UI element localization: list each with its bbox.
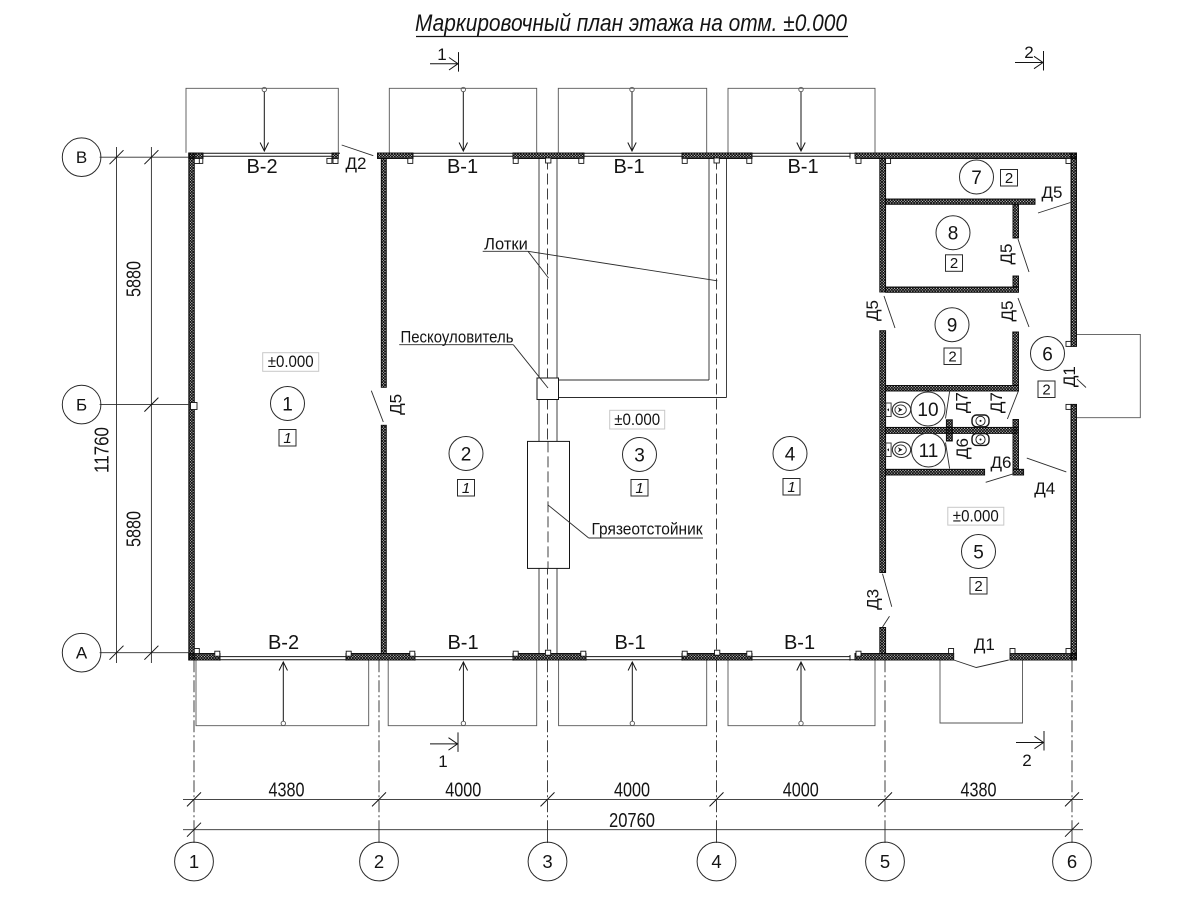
- svg-text:4000: 4000: [783, 780, 819, 802]
- svg-text:Пескоуловитель: Пескоуловитель: [401, 328, 514, 347]
- svg-text:3: 3: [634, 445, 645, 466]
- svg-text:5: 5: [880, 851, 890, 872]
- svg-text:Б: Б: [76, 396, 87, 415]
- svg-text:1: 1: [282, 394, 293, 415]
- svg-text:6: 6: [1042, 344, 1053, 365]
- svg-text:Грязеотстойник: Грязеотстойник: [592, 520, 704, 539]
- svg-text:Д6: Д6: [991, 453, 1012, 472]
- svg-text:11: 11: [919, 441, 939, 462]
- svg-text:2: 2: [1022, 751, 1031, 770]
- svg-text:Д5: Д5: [997, 244, 1016, 265]
- svg-text:5: 5: [973, 542, 984, 563]
- svg-text:В-1: В-1: [784, 632, 815, 654]
- svg-text:В-1: В-1: [447, 632, 478, 654]
- svg-text:2: 2: [1024, 43, 1033, 62]
- svg-text:5880: 5880: [124, 511, 146, 547]
- svg-text:Д6: Д6: [953, 438, 972, 459]
- svg-text:1: 1: [283, 430, 291, 447]
- svg-text:7: 7: [971, 168, 982, 189]
- svg-text:5880: 5880: [124, 261, 146, 297]
- svg-text:1: 1: [438, 752, 447, 771]
- svg-text:4: 4: [785, 444, 796, 465]
- svg-text:11760: 11760: [92, 427, 114, 473]
- svg-text:Лотки: Лотки: [484, 236, 528, 254]
- svg-text:±0.000: ±0.000: [268, 352, 314, 371]
- svg-text:20760: 20760: [609, 810, 655, 832]
- svg-text:1: 1: [462, 480, 470, 497]
- svg-text:В-1: В-1: [613, 156, 644, 178]
- svg-text:Маркировочный план этажа на от: Маркировочный план этажа на отм. ±0.000: [415, 10, 848, 37]
- svg-text:2: 2: [974, 578, 982, 595]
- svg-text:6: 6: [1067, 851, 1077, 872]
- svg-text:А: А: [76, 644, 88, 663]
- svg-text:В: В: [76, 148, 87, 167]
- svg-text:Д1: Д1: [1060, 366, 1079, 387]
- svg-text:2: 2: [1005, 170, 1013, 187]
- svg-text:9: 9: [947, 316, 958, 337]
- svg-text:В-2: В-2: [268, 632, 299, 654]
- svg-text:8: 8: [948, 224, 959, 245]
- svg-text:Д5: Д5: [387, 394, 406, 415]
- svg-text:Д7: Д7: [987, 392, 1006, 413]
- svg-text:10: 10: [917, 400, 938, 421]
- svg-text:Д2: Д2: [346, 154, 367, 173]
- svg-text:2: 2: [461, 444, 472, 465]
- svg-text:В-1: В-1: [447, 156, 478, 178]
- svg-text:±0.000: ±0.000: [953, 506, 999, 525]
- svg-text:В-1: В-1: [787, 156, 818, 178]
- svg-text:1: 1: [635, 480, 643, 497]
- svg-text:4380: 4380: [961, 780, 997, 802]
- svg-text:4380: 4380: [269, 780, 305, 802]
- svg-text:1: 1: [437, 45, 446, 64]
- svg-text:3: 3: [542, 851, 552, 872]
- svg-text:4: 4: [711, 851, 721, 872]
- svg-text:В-2: В-2: [246, 156, 277, 178]
- svg-text:2: 2: [948, 348, 956, 365]
- svg-text:4000: 4000: [445, 780, 481, 802]
- svg-text:1: 1: [189, 851, 199, 872]
- svg-text:Д7: Д7: [953, 392, 972, 413]
- svg-text:Д5: Д5: [863, 300, 882, 321]
- svg-text:2: 2: [374, 851, 384, 872]
- svg-text:Д1: Д1: [974, 635, 995, 654]
- svg-text:±0.000: ±0.000: [614, 410, 660, 429]
- svg-text:1: 1: [787, 479, 795, 496]
- svg-text:В-1: В-1: [614, 632, 645, 654]
- svg-text:Д4: Д4: [1034, 479, 1055, 498]
- svg-text:Д5: Д5: [1042, 183, 1063, 202]
- svg-text:Д5: Д5: [998, 301, 1017, 322]
- svg-text:Д3: Д3: [864, 589, 883, 610]
- svg-text:4000: 4000: [614, 780, 650, 802]
- svg-text:2: 2: [950, 255, 958, 272]
- svg-text:2: 2: [1042, 381, 1050, 398]
